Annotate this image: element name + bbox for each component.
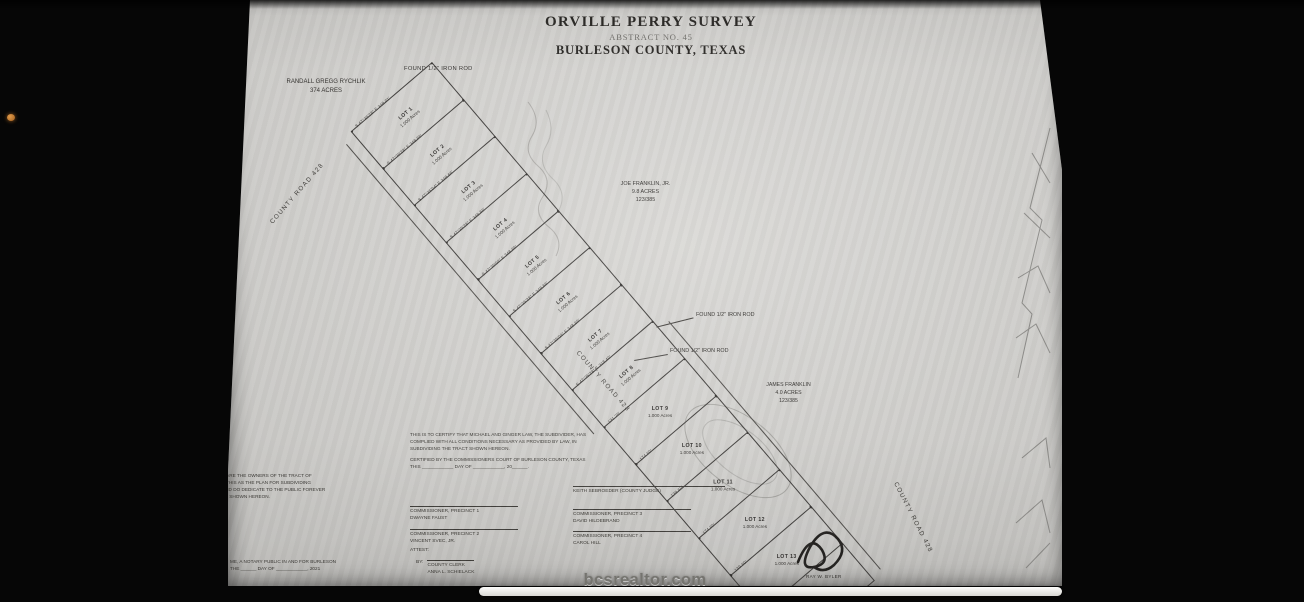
signature-county-clerk: BY: COUNTY CLERK ANNA L. SCHIELACK	[416, 560, 474, 576]
signature-precinct-1: COMMISSIONER, PRECINCT 1 DWAYNE FAUST	[410, 506, 518, 522]
road-label-northwest: COUNTY ROAD 428	[269, 162, 326, 226]
torn-edge-lines	[1016, 128, 1062, 580]
abstract-number: ABSTRACT NO. 45	[486, 32, 816, 42]
record-indicator-dot	[7, 114, 15, 121]
attest-label: ATTEST:	[410, 548, 429, 553]
signature-precinct-2: COMMISSIONER, PRECINCT 2 VINCENT SVEC, J…	[410, 529, 518, 545]
signature-county-judge: KEITH SEBROEDER (COUNTY JUDGE)	[573, 486, 725, 495]
signature-precinct-3: COMMISSIONER, PRECINCT 3 DAVID HILDEBRAN…	[573, 509, 691, 525]
commissioners-court-certification: CERTIFIED BY THE COMMISSIONERS COURT OF …	[410, 456, 625, 470]
leader-line	[656, 317, 693, 327]
site-watermark: bcsrealtor.com	[535, 571, 755, 590]
monument-label-mid-upper: FOUND 1/2" IRON ROD	[696, 312, 755, 318]
road-label-southeast: COUNTY ROAD 428	[892, 481, 934, 554]
survey-plat-document: ORVILLE PERRY SURVEY ABSTRACT NO. 45 BUR…	[228, 0, 1062, 586]
contour-squiggle	[468, 100, 578, 260]
ink-scribble	[788, 522, 858, 574]
notary-acknowledgment-clipped: ME, A NOTARY PUBLIC IN AND FOR BURLESON …	[230, 558, 410, 572]
owners-dedication-clipped: E ARE THE OWNERS OF THE TRACT OF T THIS …	[228, 472, 380, 500]
signature-precinct-4: COMMISSIONER, PRECINCT 4 CAROL HILL	[573, 531, 691, 547]
adjoiner-east: JAMES FRANKLIN 4.0 ACRES 123/385	[736, 382, 841, 405]
screen-photo: ORVILLE PERRY SURVEY ABSTRACT NO. 45 BUR…	[0, 0, 1304, 602]
contour-circle	[668, 406, 808, 496]
adjoiner-northeast: JOE FRANKLIN, JR. 9.8 ACRES 123/385	[588, 180, 703, 204]
lot-number: LOT 9	[652, 406, 669, 412]
plat-title-block: ORVILLE PERRY SURVEY ABSTRACT NO. 45 BUR…	[486, 14, 816, 58]
surveyor-name: RAY W. BYLER	[806, 574, 842, 579]
subdivider-certification: THIS IS TO CERTIFY THAT MICHAEL AND GING…	[410, 432, 625, 452]
survey-name: ORVILLE PERRY SURVEY	[486, 14, 816, 31]
county-state: BURLESON COUNTY, TEXAS	[486, 43, 816, 58]
